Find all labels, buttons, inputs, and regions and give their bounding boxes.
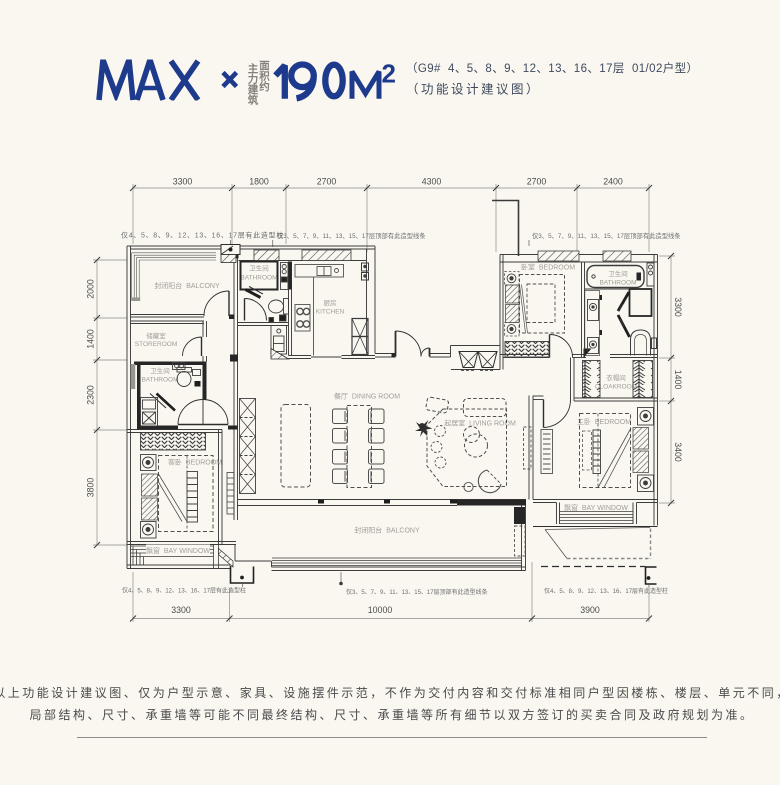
svg-text:卫生间: 卫生间 [608,269,628,278]
svg-text:10000: 10000 [368,605,393,615]
svg-text:3900: 3900 [580,605,600,615]
svg-text:STOREROOM: STOREROOM [135,341,178,348]
svg-text:（G9# 4、5、8、9、12、13、16、17层 01: （G9# 4、5、8、9、12、13、16、17层 01/02户型） [406,61,698,75]
svg-text:飘窗 BAY WINDOW: 飘窗 BAY WINDOW [146,546,210,555]
svg-text:KITCHEN: KITCHEN [316,309,345,316]
svg-text:主卧 BEDROOM: 主卧 BEDROOM [577,417,631,426]
svg-text:储藏室: 储藏室 [146,331,166,340]
svg-text:BATHROOM: BATHROOM [240,275,277,282]
svg-text:3300: 3300 [173,177,193,187]
svg-text:起居室 LIVING ROOM: 起居室 LIVING ROOM [444,419,516,428]
svg-text:1400: 1400 [86,329,96,349]
svg-text:3400: 3400 [673,442,683,462]
svg-text:1400: 1400 [673,370,683,390]
svg-text:仅4、5、8、9、12、13、16、17层有此造型柱: 仅4、5、8、9、12、13、16、17层有此造型柱 [122,587,246,595]
svg-text:厨房: 厨房 [324,298,337,307]
svg-text:CLOAKROOM: CLOAKROOM [595,384,637,391]
svg-text:（功能设计建议图）: （功能设计建议图） [406,82,541,97]
svg-text:主力建筑: 主力建筑 [247,62,259,106]
svg-text:卧室 BEDROOM: 卧室 BEDROOM [521,263,575,272]
svg-text:2300: 2300 [86,385,96,405]
svg-text:2700: 2700 [317,177,337,187]
svg-text:仅4、5、8、9、12、13、16、17层有此造型柱: 仅4、5、8、9、12、13、16、17层有此造型柱 [544,587,668,595]
svg-text:3300: 3300 [171,605,191,615]
svg-text:以上功能设计建议图、仅为户型示意、家具、设施摆件示范，不作为: 以上功能设计建议图、仅为户型示意、家具、设施摆件示范，不作为交付内容和交付标准相… [0,685,780,700]
svg-text:飘窗 BAY WINDOW: 飘窗 BAY WINDOW [564,503,628,512]
svg-text:仅3、5、7、9、11、13、15、17层顶部有此造型线条: 仅3、5、7、9、11、13、15、17层顶部有此造型线条 [346,588,488,596]
svg-text:2: 2 [382,59,396,89]
svg-text:衣帽间: 衣帽间 [606,373,626,382]
svg-text:2400: 2400 [603,177,623,187]
svg-text:BATHROOM: BATHROOM [599,280,636,287]
svg-text:局部结构、尺寸、承重墙等可能不同最终结构、尺寸、承重墙等所有: 局部结构、尺寸、承重墙等可能不同最终结构、尺寸、承重墙等所有细节以双方签订的买卖… [29,707,754,722]
svg-text:4300: 4300 [422,177,442,187]
svg-text:BATHROOM: BATHROOM [141,377,178,384]
svg-text:餐厅 DINING ROOM: 餐厅 DINING ROOM [334,392,400,401]
svg-text:仅3、5、7、9、11、13、15、17层顶部有此造型线条: 仅3、5、7、9、11、13、15、17层顶部有此造型线条 [532,231,681,240]
svg-text:3800: 3800 [86,478,96,498]
svg-text:仅3、5、7、9、11、13、15、17层顶部有此造型线条: 仅3、5、7、9、11、13、15、17层顶部有此造型线条 [277,231,426,240]
svg-text:1800: 1800 [249,177,269,187]
svg-text:卫生间: 卫生间 [249,264,269,273]
svg-text:3300: 3300 [673,297,683,317]
svg-text:客卧 BEDROOM: 客卧 BEDROOM [168,458,222,467]
svg-text:卫生间: 卫生间 [150,366,170,375]
svg-text:封闭阳台 BALCONY: 封闭阳台 BALCONY [154,281,220,290]
svg-text:2700: 2700 [527,177,547,187]
svg-text:面积约: 面积约 [258,60,270,92]
svg-text:封闭阳台 BALCONY: 封闭阳台 BALCONY [354,526,420,535]
svg-text:2000: 2000 [86,279,96,299]
svg-text:仅4、5、8、9、12、13、16、17层有此造型柱: 仅4、5、8、9、12、13、16、17层有此造型柱 [121,231,284,240]
